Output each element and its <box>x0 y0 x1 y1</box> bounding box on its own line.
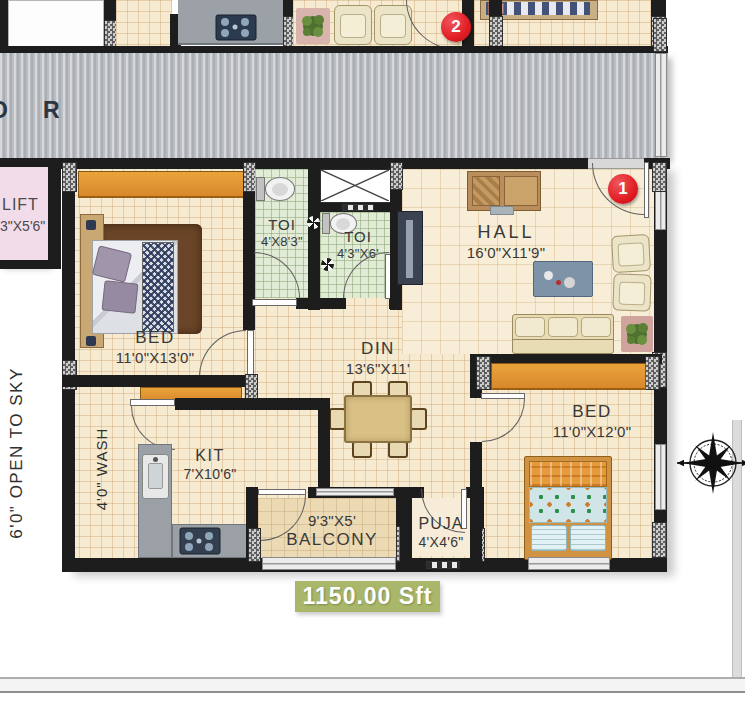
divider-line <box>0 691 745 693</box>
console-bench <box>467 171 541 211</box>
corridor-end-window <box>655 53 667 157</box>
armchair <box>611 234 651 273</box>
window <box>655 444 666 510</box>
plant-icon <box>624 319 651 349</box>
door-leaf <box>247 330 254 377</box>
wall <box>0 260 61 269</box>
upper-room-floor <box>116 0 172 47</box>
unit-1-marker: 1 <box>608 174 638 204</box>
balcony-railing-window <box>262 557 396 570</box>
room-name: DIN <box>337 339 419 360</box>
toilet-icon <box>265 177 295 201</box>
tv-unit <box>397 211 423 285</box>
puja-label: PUJA 4'X4'6" <box>406 514 476 551</box>
bed-throw <box>142 242 174 332</box>
sofa <box>512 314 614 354</box>
entrance-door-leaf <box>644 162 649 218</box>
door-leaf <box>252 299 297 306</box>
lift-room <box>0 165 48 265</box>
pillow <box>570 525 606 551</box>
wall <box>489 0 502 16</box>
column-hatch <box>652 522 667 558</box>
stove-icon <box>215 14 257 41</box>
wash-label: 4'0" WASH <box>93 414 111 524</box>
column-hatch <box>653 18 667 52</box>
duct-shaft <box>320 169 391 203</box>
exhaust-fan-icon <box>307 216 320 229</box>
balcony-label: 9'3"X5' BALCONY <box>270 512 394 551</box>
column-hatch <box>62 162 77 192</box>
corridor <box>0 53 668 158</box>
dining-chair <box>388 441 408 458</box>
vent-window <box>426 561 460 569</box>
center-table <box>533 261 593 297</box>
open-to-sky-label: 6'0" OPEN TO SKY <box>7 298 33 608</box>
wall <box>318 410 330 488</box>
wall <box>175 398 330 410</box>
wardrobe <box>491 363 646 390</box>
window <box>528 557 610 570</box>
dining-chair <box>352 441 372 458</box>
hall-label: HALL 16'0"X11'9" <box>447 222 565 262</box>
plant-icon <box>299 11 327 41</box>
column-hatch <box>652 162 667 192</box>
column-hatch <box>489 16 503 48</box>
unit-2-marker: 2 <box>441 12 471 42</box>
pillow <box>102 280 139 313</box>
divider-band <box>0 679 745 691</box>
corridor-letter: R <box>43 97 60 124</box>
compass-rose-icon <box>676 426 745 500</box>
corridor-letter: O <box>0 97 8 124</box>
bedside-lamp <box>86 220 96 230</box>
wall <box>0 0 8 47</box>
exhaust-fan-icon <box>321 258 334 271</box>
toi1-label: TOI 4'X8'3" <box>248 216 316 250</box>
sink-icon <box>142 454 169 499</box>
vent-window <box>342 204 374 211</box>
wall <box>651 0 666 16</box>
room-dims: 4'X8'3" <box>248 234 316 250</box>
shaft-cross-icon <box>321 170 389 201</box>
stove-icon <box>179 527 221 555</box>
room-dims: 4'X4'6" <box>406 534 476 551</box>
room-name: TOI <box>324 228 392 246</box>
dining-chair <box>410 408 427 430</box>
floor-plan-canvas: 2 O R LIFT 3"X5'6" 6'0" OPEN TO SKY BED … <box>0 0 745 713</box>
lift-label: LIFT <box>2 196 58 214</box>
wall <box>308 158 320 310</box>
wall <box>62 375 257 387</box>
pillow <box>531 525 567 551</box>
door-leaf <box>130 399 175 406</box>
room-name: BED <box>103 328 207 349</box>
column-hatch <box>390 162 403 190</box>
room-dims: 11'0"X13'0" <box>103 349 207 367</box>
area-badge: 1150.00 Sft <box>295 581 440 612</box>
wall <box>470 442 482 572</box>
bed2-label: BED 11'0"X12'0" <box>540 402 644 441</box>
wardrobe <box>78 171 246 198</box>
lift-dims: 3"X5'6" <box>0 218 58 234</box>
wall <box>104 0 116 20</box>
room-dims: 13'6"X11' <box>337 360 419 378</box>
room-name: TOI <box>248 216 316 234</box>
bed <box>524 456 612 560</box>
window <box>316 488 394 496</box>
wall-corridor-top <box>0 46 668 53</box>
armchair <box>334 5 372 45</box>
armchair <box>612 273 651 311</box>
toilet-icon <box>256 177 265 201</box>
room-name: PUJA <box>406 514 476 534</box>
room-name: HALL <box>447 222 565 244</box>
column-hatch <box>645 356 660 390</box>
kit-label: KIT 7'X10'6" <box>176 446 244 483</box>
bed-blanket <box>529 461 607 487</box>
room-dims: 11'0"X12'0" <box>540 423 644 441</box>
column-hatch <box>248 528 261 562</box>
bed-sheet <box>529 487 607 523</box>
din-label: DIN 13'6"X11' <box>337 339 419 378</box>
room-dims: 7'X10'6" <box>176 466 244 483</box>
room-dims: 9'3"X5' <box>270 512 394 530</box>
wall <box>283 0 293 16</box>
dining-table <box>344 395 412 443</box>
room-name: BED <box>540 402 644 423</box>
room-name: KIT <box>176 446 244 466</box>
column-hatch <box>476 356 491 390</box>
wall <box>317 298 346 309</box>
upper-room-blank <box>8 0 104 47</box>
wall-top <box>55 158 588 169</box>
bedside-lamp <box>86 336 96 346</box>
room-dims: 16'0"X11'9" <box>447 244 565 262</box>
bed1-label: BED 11'0"X13'0" <box>103 328 207 367</box>
room-name: BALCONY <box>270 530 394 551</box>
